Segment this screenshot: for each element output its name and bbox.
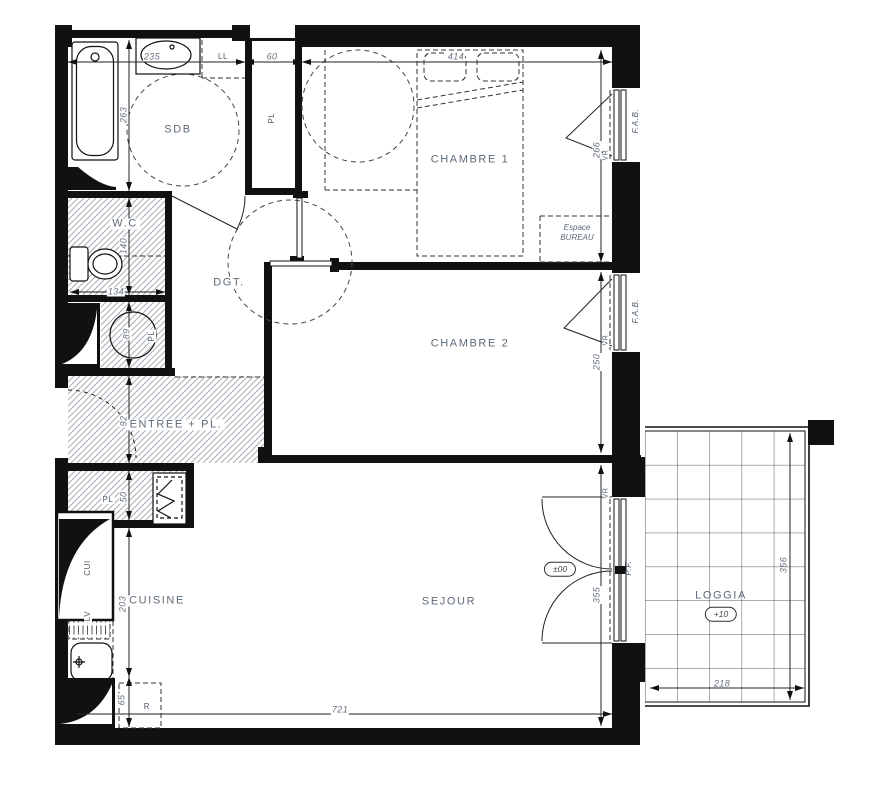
dim-pl-width: 60 — [266, 53, 279, 62]
appliance-label-lv: LV — [84, 610, 92, 622]
espace-bureau-label: Espace BUREAU — [558, 222, 595, 244]
window-label-fab1: F.A.B. — [632, 108, 640, 135]
door-leaf-sdb — [172, 196, 237, 229]
dim-chambre1-height: 266 — [593, 141, 602, 159]
window-label-pf: P.F. — [625, 559, 633, 576]
dim-wc-width: 134 — [107, 288, 125, 297]
dim-sejour-height: 355 — [593, 586, 602, 604]
dim-sdb-width: 235 — [143, 53, 161, 62]
window-label-vr3: VR — [603, 487, 610, 500]
room-label-entree: ENTREE + PL. — [128, 420, 225, 431]
floor-plan: SDB W.C DGT. CHAMBRE 1 CHAMBRE 2 ENTREE … — [0, 0, 872, 800]
window-label-fab2: F.A.B. — [632, 298, 640, 325]
floor-plan-linework — [0, 0, 872, 800]
dim-loggia-height: 356 — [780, 556, 789, 574]
pillow — [477, 53, 519, 81]
dim-pl-height: 50 — [120, 491, 129, 504]
dim-ballon-height: 89 — [123, 328, 132, 341]
dim-wc-height: 140 — [120, 237, 129, 255]
dim-cuisine-height: 203 — [119, 595, 128, 613]
appliance-label-ll: LL — [217, 53, 229, 61]
room-label-wc: W.C — [110, 219, 140, 230]
room-label-sejour: SEJOUR — [420, 597, 478, 608]
dim-total-width: 721 — [331, 706, 349, 715]
dim-chambre1-width: 414 — [447, 53, 465, 62]
closet-label-pl-sdb: PL — [268, 112, 276, 125]
window-label-vr2: VR — [603, 334, 610, 347]
room-label-chambre1: CHAMBRE 1 — [429, 155, 512, 166]
door-leaf-chambre1 — [297, 198, 302, 258]
appliance-label-r: R — [143, 703, 151, 711]
room-label-sdb: SDB — [162, 125, 193, 136]
room-label-loggia: LOGGIA — [693, 591, 749, 602]
window-label-vr1: VR — [603, 149, 610, 162]
dim-loggia-width: 218 — [713, 680, 731, 689]
level-marker-sejour: ±00 — [544, 562, 576, 577]
level-marker-loggia: +10 — [705, 607, 737, 622]
door-leaf-chambre2 — [270, 261, 332, 266]
dim-entree-height: 92 — [120, 415, 129, 428]
room-label-cuisine: CUISINE — [127, 596, 187, 607]
room-label-chambre2: CHAMBRE 2 — [429, 339, 512, 350]
closet-label-pl-entree: PL — [102, 496, 115, 504]
casement-swing-chambre1 — [566, 94, 612, 156]
dim-fridge-height: 65 — [118, 694, 127, 707]
toilet — [70, 247, 88, 281]
appliance-label-cui: CUI — [84, 559, 92, 577]
dim-sdb-height: 263 — [120, 106, 129, 124]
room-label-dgt: DGT. — [211, 278, 246, 289]
dim-chambre2-height: 250 — [593, 353, 602, 371]
closet-label-pl-ballon: PL — [148, 330, 156, 343]
